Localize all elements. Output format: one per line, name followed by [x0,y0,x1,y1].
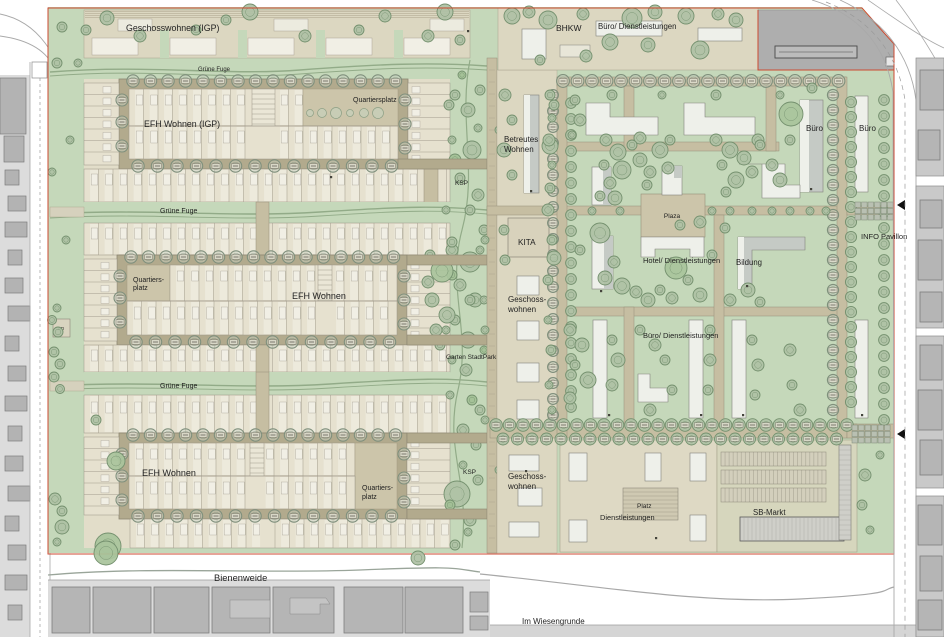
svg-text:Garten StadtPark: Garten StadtPark [446,354,497,361]
svg-text:EFH Wohnen: EFH Wohnen [292,291,346,301]
svg-text:EFH Wohnen: EFH Wohnen [142,468,196,478]
svg-text:Quartiers-: Quartiers- [362,485,394,492]
svg-text:Hotel/ Dienstleistungen: Hotel/ Dienstleistungen [643,256,720,265]
svg-text:Dienstleistungen: Dienstleistungen [600,513,655,522]
svg-text:Bildung: Bildung [736,258,762,267]
svg-text:platz: platz [133,285,148,292]
svg-text:KITA: KITA [518,238,536,247]
svg-text:Grüne Fuge: Grüne Fuge [198,67,231,73]
svg-text:Platz: Platz [637,503,651,510]
svg-text:Quartiersplatz: Quartiersplatz [353,97,397,104]
svg-text:Grüne Fuge: Grüne Fuge [160,208,197,215]
svg-text:BHKW: BHKW [556,23,582,33]
svg-text:KSP: KSP [463,469,476,476]
svg-text:Büro: Büro [806,124,823,133]
svg-text:Büro/ Dienstleistungen: Büro/ Dienstleistungen [598,22,676,31]
svg-text:Plaza: Plaza [664,213,681,220]
svg-text:KSP: KSP [455,180,468,187]
svg-text:Quartiers-: Quartiers- [133,277,165,284]
svg-text:Wohnen: Wohnen [504,145,534,154]
svg-text:platz: platz [362,494,377,501]
svg-text:Betreutes: Betreutes [504,135,538,144]
svg-text:INFO Pavillon: INFO Pavillon [861,232,907,241]
svg-text:Geschoss-: Geschoss- [508,472,547,481]
svg-text:Büro/ Dienstleistungen: Büro/ Dienstleistungen [643,331,718,340]
svg-text:Geschosswohnen (IGP): Geschosswohnen (IGP) [126,23,219,33]
svg-text:SB-Markt: SB-Markt [753,508,786,517]
svg-text:Geschoss-: Geschoss- [508,295,547,304]
svg-text:EFH Wohnen (IGP): EFH Wohnen (IGP) [144,119,220,129]
svg-text:wohnen: wohnen [507,482,536,491]
svg-text:wohnen: wohnen [507,305,536,314]
svg-text:Grüne Fuge: Grüne Fuge [160,383,197,390]
svg-text:Büro: Büro [859,124,876,133]
svg-text:Im Wiesengrunde: Im Wiesengrunde [522,617,585,626]
svg-text:Bienenweide: Bienenweide [214,573,267,583]
